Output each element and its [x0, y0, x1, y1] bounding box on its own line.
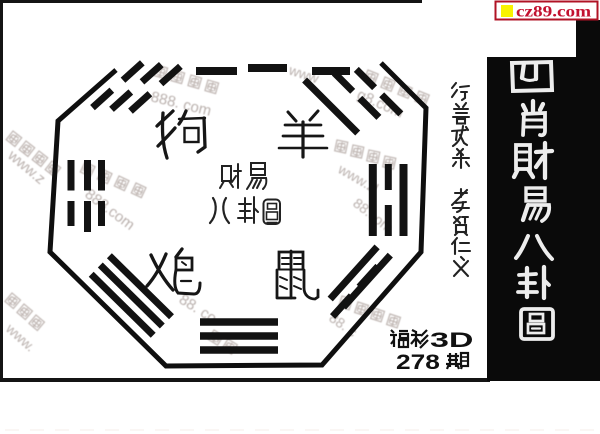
- svg-text:3D: 3D: [430, 328, 473, 352]
- svg-text:cz89.com: cz89.com: [516, 2, 591, 20]
- svg-text:278: 278: [396, 350, 440, 374]
